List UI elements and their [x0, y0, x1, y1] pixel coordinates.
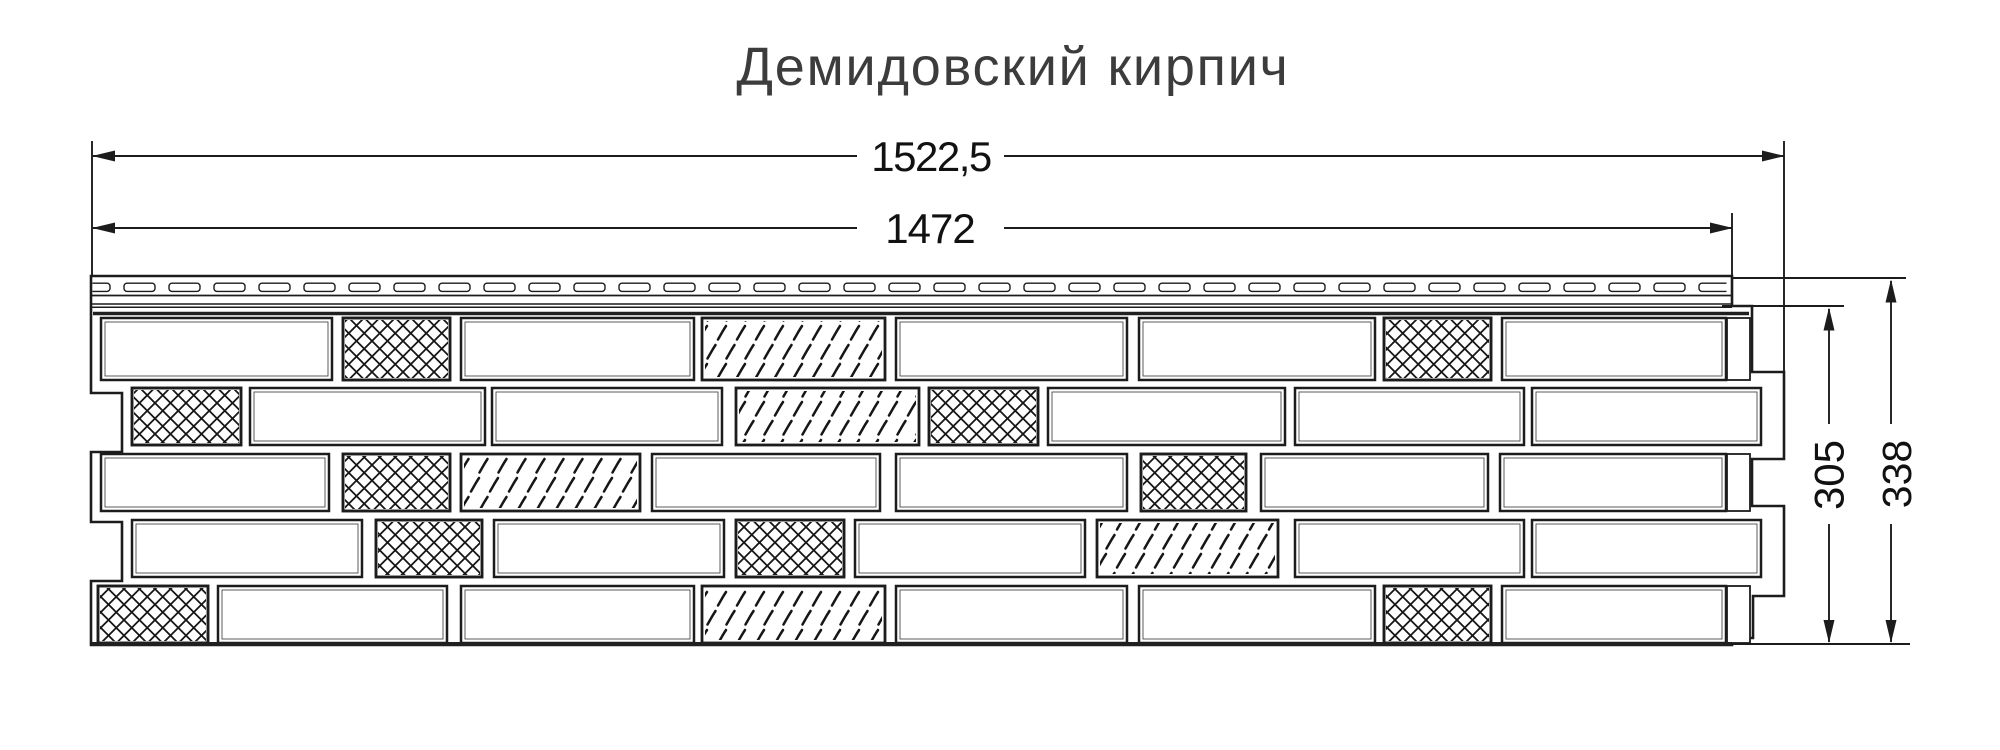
svg-text:1472: 1472	[885, 205, 974, 252]
svg-text:Демидовский кирпич: Демидовский кирпич	[736, 37, 1289, 97]
svg-text:305: 305	[1806, 440, 1853, 510]
svg-text:1522,5: 1522,5	[871, 133, 991, 180]
svg-text:338: 338	[1874, 440, 1920, 508]
